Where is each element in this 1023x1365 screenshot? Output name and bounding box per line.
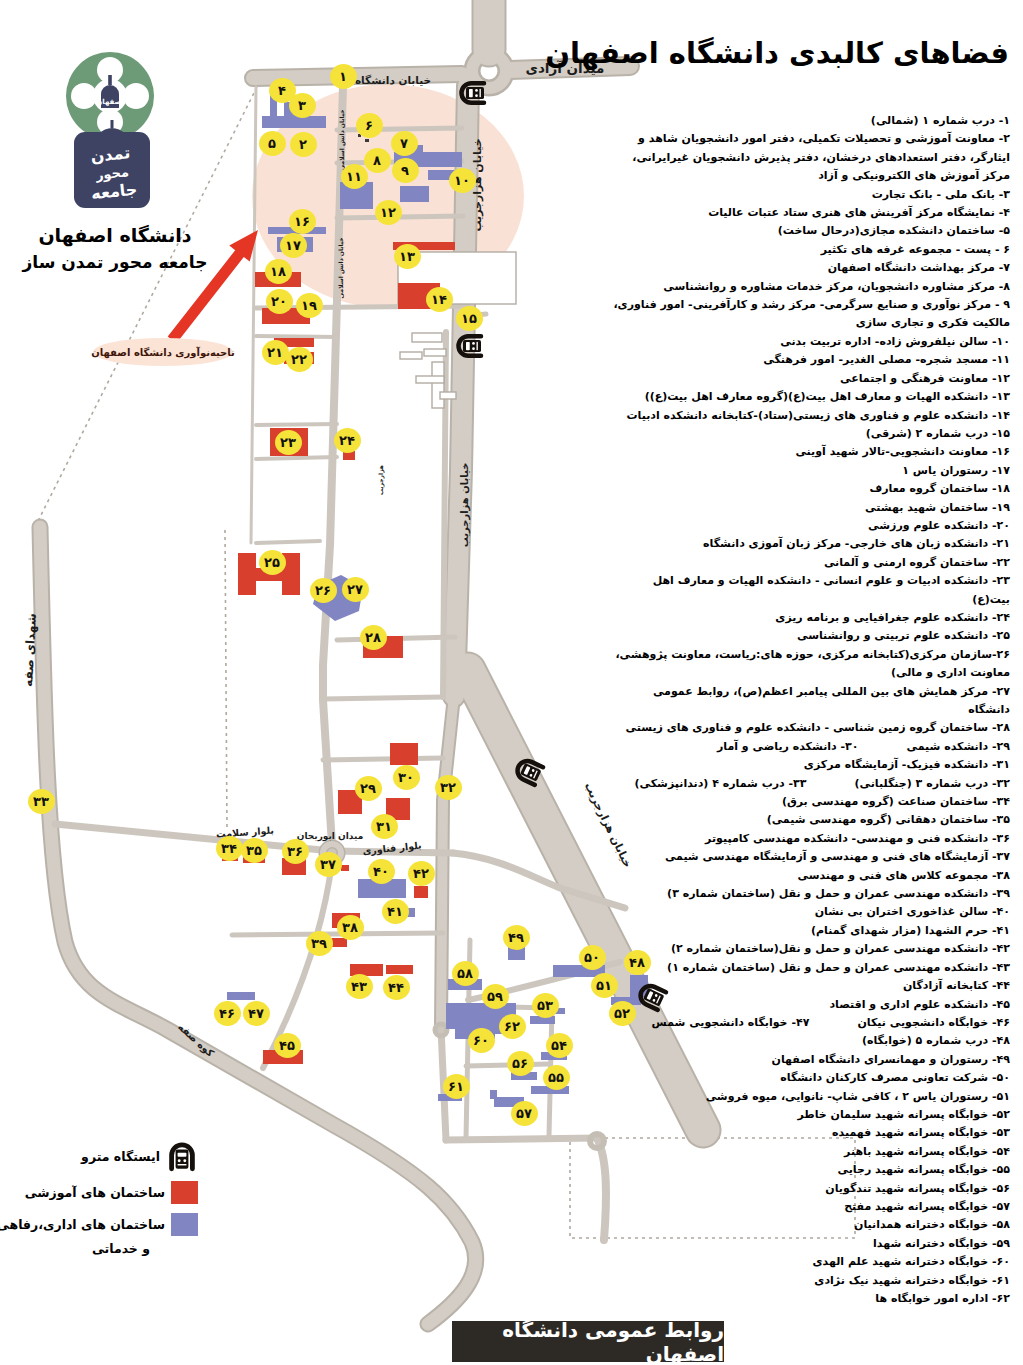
admin-building <box>313 575 363 621</box>
location-list-item: ۴۹- رستوران و مهمانسرای دانشگاه اصفهان <box>772 1051 1010 1069</box>
admin-building <box>511 1072 537 1080</box>
admin-building <box>227 992 255 1000</box>
location-list-item: ۱۸- ساختمان گروه معارف <box>869 480 1010 498</box>
educational-building <box>282 858 306 875</box>
location-list-row: ۲- معاونت آموزشی و تحصیلات تکمیلی، دفتر … <box>612 130 1010 185</box>
admin-building <box>541 1052 567 1060</box>
location-list-row: ۴۹- رستوران و مهمانسرای دانشگاه اصفهان <box>612 1051 1010 1069</box>
location-list-item: ۱۹- ساختمان شهید بهشتی <box>865 499 1010 517</box>
educational-building <box>284 352 314 364</box>
educational-building <box>386 965 413 974</box>
location-list-row: ۱۴- دانشکده علوم و فناوری های زیستی(ستاد… <box>612 407 1010 425</box>
admin-building <box>545 1008 565 1014</box>
location-list-row: ۲۶-سازمان مرکزی(کتابخانه مرکزی، حوزه های… <box>612 646 1010 683</box>
location-list-item: ۵۶- خوابگاه پسرانه شهید تندگویان <box>825 1180 1010 1198</box>
location-list-row: ۹ - مرکز نوآوری و صنایع سرگرمی- مرکز رشد… <box>612 296 1010 333</box>
location-list-row: ۵۶- خوابگاه پسرانه شهید تندگویان <box>612 1180 1010 1198</box>
location-list-row: ۵۸- خوابگاه دخترانه همدانیان <box>612 1216 1010 1234</box>
admin-building <box>270 92 277 120</box>
admin-building <box>494 1097 524 1107</box>
location-list-item: ۳۴- ساختمان صناعت (گروه مهندسی برق) <box>782 793 1010 811</box>
location-list-row: ۵۰- شرکت تعاونی مصرف کارکنان دانشگاه <box>612 1069 1010 1087</box>
outline-building <box>424 349 446 356</box>
map-legend: ایستگاه مترو ساختمان های آموزشی ساختمان … <box>0 1140 198 1265</box>
educational-building <box>341 865 349 871</box>
educational-building <box>414 886 428 898</box>
location-list-item: ۵۲- خوابگاه پسرانه شهید سلیمان خاطر <box>797 1106 1010 1124</box>
location-list-row: ۱۶- معاونت دانشجویی-تالار شهید آوینی <box>612 443 1010 461</box>
location-list-row: ۲۹- دانشکده شیمی۳۰- دانشکده ریاضی و آمار <box>612 738 1010 756</box>
location-list-row: ۶۱- خوابگاه دخترانه شهید نیک نژادی <box>612 1272 1010 1290</box>
educational-building <box>350 964 383 976</box>
innovation-arrow <box>168 230 258 343</box>
location-list-item: ۲- معاونت آموزشی و تحصیلات تکمیلی، دفتر … <box>612 130 1010 185</box>
admin-building <box>531 1086 569 1094</box>
outline-building <box>400 352 422 359</box>
footer-banner: روابط عمومی دانشگاه اصفهان <box>452 1321 724 1362</box>
location-list-row: ۱۹- ساختمان شهید بهشتی <box>612 499 1010 517</box>
location-list-item: ۲۰- دانشکده علوم ورزشی <box>868 517 1010 535</box>
outline-building <box>440 392 456 399</box>
location-list-item: ۶۲- اداره امور خوابگاه ها <box>875 1290 1010 1308</box>
educational-building <box>386 798 410 820</box>
location-list-item: ۳۵- ساختمان دهقانی (گروه مهندسی شیمی) <box>767 811 1010 829</box>
map-detail <box>365 139 369 142</box>
location-list-item: ۳۳- درب شماره ۴ (دندانپزشکی) <box>635 775 807 793</box>
legend-label: و خدماتی <box>92 1241 150 1256</box>
location-list-item: ۱۶- معاونت دانشجویی-تالار شهید آوینی <box>795 443 1010 461</box>
location-list-row: ۲۴- دانشکده علوم جغرافیایی و برنامه ریزی <box>612 609 1010 627</box>
educational-building <box>270 428 308 456</box>
location-list-item: ۲۵- دانشکده علوم تربیتی و روانشناسی <box>797 627 1010 645</box>
location-list-row: ۶ - پست - مجموعه غرفه های تکثیر <box>612 241 1010 259</box>
educational-building <box>252 568 286 581</box>
location-list-item: ۴- نمایشگاه مرکز آفرینش های هنری ستاد عت… <box>708 204 1010 222</box>
legend-label: ساختمان های اداری،رفاهی <box>0 1217 165 1232</box>
location-list-row: ۳۶- دانشکده فنی و مهندسی- دانشکده مهندسی… <box>612 830 1010 848</box>
location-list-item: ۲۸- ساختمان گروه زمین شناسی - دانشکده عل… <box>626 719 1010 737</box>
location-list-item: ۶ - پست - مجموعه غرفه های تکثیر <box>821 241 1010 259</box>
location-list-item: ۳۰- دانشکده ریاضی و آمار <box>717 738 859 756</box>
location-list-item: ۷- مرکز بهداشت دانشگاه اصفهان <box>828 259 1010 277</box>
legend-row-educational: ساختمان های آموزشی <box>0 1181 198 1204</box>
map-detail <box>359 127 363 131</box>
educational-building <box>262 308 310 324</box>
location-list-item: ۱۱- مسجد شجره- مصلی الغدیر- امور فرهنگی <box>763 351 1010 369</box>
admin-building <box>268 227 326 234</box>
location-list-row: ۶۰- خوابگاه دخترانه شهید علم الهدی <box>612 1253 1010 1271</box>
location-list-row: ۴۸- درب شماره ۵ (خوابگاه) <box>612 1032 1010 1050</box>
educational-building <box>263 1050 303 1064</box>
location-list-row: ۵۳- خوابگاه پسرانه شهید فهمیده <box>612 1124 1010 1142</box>
location-list-row: ۲۷- مرکز همایش های بین المللی پیامبر اعظ… <box>612 683 1010 720</box>
educational-building <box>243 856 265 863</box>
location-list-item: ۵۳- خوابگاه پسرانه شهید فهمیده <box>832 1124 1010 1142</box>
location-list-item: ۲۴- دانشکده علوم جغرافیایی و برنامه ریزی <box>775 609 1010 627</box>
location-list-item: ۱۵- درب شماره ۲ (شرقی) <box>866 425 1010 443</box>
educational-building <box>332 913 360 928</box>
location-list-row: ۴۳- دانشکده مهندسی عمران و حمل و نقل (سا… <box>612 959 1010 977</box>
location-list-row: ۲۵- دانشکده علوم تربیتی و روانشناسی <box>612 627 1010 645</box>
innovation-district-label: ناحیه‌نوآوری دانشگاه اصفهان <box>93 338 233 366</box>
location-list-item: ۲۲- ساختمان گروه ارمنی و آلمانی <box>824 554 1010 572</box>
location-list-row: ۴۰- سالن غذاخوری اختران بی نشان <box>612 903 1010 921</box>
location-list-item: ۳۲- درب شماره ۳ (جنگلبانی) <box>855 775 1010 793</box>
location-list-item: ۱۲- معاونت فرهنگی و اجتماعی <box>840 370 1010 388</box>
emblem-text: اصفهان <box>96 98 123 106</box>
location-list-row: ۳۷- آزمایشگاه های فنی و مهندسی و آزمایشگ… <box>612 848 1010 866</box>
legend-row-administrative-cont: و خدماتی <box>0 1241 198 1256</box>
location-list-row: ۵۱- رستوران یاس ۲ ، کافی شاپ- نانوایی، م… <box>612 1088 1010 1106</box>
location-list-item: ۶۱- خوابگاه دخترانه شهید نیک نژادی <box>814 1272 1010 1290</box>
location-list-row: ۱۲- معاونت فرهنگی و اجتماعی <box>612 370 1010 388</box>
location-list-item: ۲۶-سازمان مرکزی(کتابخانه مرکزی، حوزه های… <box>612 646 1010 683</box>
admin-building <box>488 1000 502 1034</box>
location-list-item: ۱۳- دانشکده الهیات و معارف اهل بیت(ع)(گر… <box>645 388 1010 406</box>
location-list-item: ۲۳- دانشکده ادبیات و علوم انسانی - دانشک… <box>612 572 1010 609</box>
location-list-item: ۵۹- خوابگاه دخترانه شهدا <box>873 1235 1010 1253</box>
admin-building <box>438 1094 462 1101</box>
page-title: فضاهای کالبدی دانشگاه اصفهان <box>545 36 1009 70</box>
location-list-row: ۵۷- خوابگاه پسرانه شهید مفتح <box>612 1198 1010 1216</box>
location-list-item: ۳۷- آزمایشگاه های فنی و مهندسی و آزمایشگ… <box>665 848 1010 866</box>
location-list-item: ۸- مرکز مشاوره دانشجویان، مرکز خدمات مشا… <box>663 278 1010 296</box>
location-list-item: ۳۶- دانشکده فنی و مهندسی- دانشکده مهندسی… <box>705 830 1010 848</box>
educational-color-swatch <box>171 1181 198 1204</box>
admin-building <box>358 879 406 898</box>
legend-row-metro: ایستگاه مترو <box>0 1140 198 1172</box>
admin-building <box>404 908 415 917</box>
location-list-item: ۳- بانک ملی - بانک تجارت <box>872 186 1010 204</box>
educational-building <box>222 852 238 861</box>
map-detail <box>366 132 370 136</box>
location-list-row: ۳۱- دانشکده فیزیک- آزمایشگاه مرکزی <box>612 756 1010 774</box>
legend-label: ایستگاه مترو <box>81 1149 160 1164</box>
location-list-item: ۵۴- خوابگاه پسرانه شهید باهنر <box>844 1143 1010 1161</box>
metro-icon <box>166 1140 198 1172</box>
location-list-row: ۱- درب شماره ۱ (شمالی) <box>612 112 1010 130</box>
location-list-row: ۲۲- ساختمان گروه ارمنی و آلمانی <box>612 554 1010 572</box>
university-slogan: جامعه محور تمدن ساز <box>8 252 222 272</box>
location-list-item: ۱- درب شماره ۱ (شمالی) <box>871 112 1010 130</box>
educational-building <box>398 283 440 309</box>
location-list-row: ۵۹- خوابگاه دخترانه شهدا <box>612 1235 1010 1253</box>
location-list-item: ۴۱- حرم الشهدا (مزار شهدای گمنام) <box>811 922 1010 940</box>
admin-building <box>446 1003 516 1029</box>
map-detail <box>358 134 361 137</box>
location-list-item: ۴۰- سالن غذاخوری اختران بی نشان <box>815 903 1010 921</box>
admin-building <box>490 1090 497 1099</box>
administrative-color-swatch <box>171 1213 198 1236</box>
location-list-row: ۴۴- کتابخانه آزادگان <box>612 977 1010 995</box>
admin-building <box>553 965 605 977</box>
admin-building <box>530 1016 555 1024</box>
location-list-item: ۵۰- شرکت تعاونی مصرف کارکنان دانشگاه <box>780 1069 1010 1087</box>
location-list-item: ۵- ساختمان دانشکده مجازی(درحال ساخت) <box>778 222 1010 240</box>
location-list-item: ۵۸- خوابگاه دخترانه همدانیان <box>854 1216 1010 1234</box>
location-list-item: ۴۲- دانشکده مهندسی عمران و حمل و نقل(ساخ… <box>671 940 1010 958</box>
location-list-item: ۶۰- خوابگاه دخترانه شهید علم الهدی <box>812 1253 1010 1271</box>
location-list-row: ۳- بانک ملی - بانک تجارت <box>612 186 1010 204</box>
legend-row-administrative: ساختمان های اداری،رفاهی <box>0 1213 198 1236</box>
location-list-item: ۴۷- خوابگاه دانشجویی شمس <box>652 1014 810 1032</box>
location-list-row: ۵۴- خوابگاه پسرانه شهید باهنر <box>612 1143 1010 1161</box>
location-list-row: ۳۸- مجموعه کلاس های فنی و مهندسی <box>612 867 1010 885</box>
location-list-row: ۸- مرکز مشاوره دانشجویان، مرکز خدمات مشا… <box>612 278 1010 296</box>
location-list-item: ۲۱- دانشکده زبان های خارجی- مرکز زبان آم… <box>703 535 1010 553</box>
admin-building <box>284 102 302 116</box>
campus-boundary <box>225 530 227 830</box>
admin-building <box>400 186 429 202</box>
location-list-row: ۱۳- دانشکده الهیات و معارف اهل بیت(ع)(گر… <box>612 388 1010 406</box>
outline-building <box>412 333 442 342</box>
location-list-row: ۶۲- اداره امور خوابگاه ها <box>612 1290 1010 1308</box>
location-list-item: ۹ - مرکز نوآوری و صنایع سرگرمی- مرکز رشد… <box>612 296 1010 333</box>
location-list-row: ۳۵- ساختمان دهقانی (گروه مهندسی شیمی) <box>612 811 1010 829</box>
location-list-item: ۳۹- دانشکده مهندسی عمران و حمل و نقل (سا… <box>667 885 1010 903</box>
location-list-row: ۱۷- رستوران یاس ۱ <box>612 462 1010 480</box>
admin-building <box>407 145 423 152</box>
location-list-row: ۴۶- خوابگاه دانشجویی نیکان۴۷- خوابگاه دا… <box>612 1014 1010 1032</box>
educational-building <box>329 860 338 868</box>
location-list-item: ۱۷- رستوران یاس ۱ <box>902 462 1010 480</box>
location-list-row: ۱۰- سالن نیلفروش زاده- اداره تربیت بدنی <box>612 333 1010 351</box>
campus-map-poster: خیابان دانشگاهمیدان آزادیخیابان هزارجریب… <box>0 0 1023 1365</box>
location-list-item: ۵۷- خوابگاه پسرانه شهید مفتح <box>844 1198 1010 1216</box>
location-list-item: ۵۱- رستوران یاس ۲ ، کافی شاپ- نانوایی، م… <box>706 1088 1010 1106</box>
outline-building <box>432 362 444 408</box>
slogan-plaque-icon: تمدن محور جامعه <box>70 118 154 212</box>
location-list-row: ۴۵- دانشکده علوم اداری و اقتصاد <box>612 996 1010 1014</box>
admin-building <box>455 1029 495 1039</box>
admin-building <box>277 237 313 252</box>
location-list-item: ۴۳- دانشکده مهندسی عمران و حمل و نقل (سا… <box>667 959 1010 977</box>
location-list-row: ۴- نمایشگاه مرکز آفرینش های هنری ستاد عت… <box>612 204 1010 222</box>
location-list-row: ۵۵- خوابگاه پسرانه شهید رجایی <box>612 1161 1010 1179</box>
location-list-item: ۴۸- درب شماره ۵ (خوابگاه) <box>862 1032 1010 1050</box>
location-list-item: ۳۱- دانشکده فیزیک- آزمایشگاه مرکزی <box>804 756 1010 774</box>
location-list-row: ۳۴- ساختمان صناعت (گروه مهندسی برق) <box>612 793 1010 811</box>
location-list-item: ۴۶- خوابگاه دانشجویی نیکان <box>857 1014 1010 1032</box>
educational-building <box>327 938 347 947</box>
location-list-row: ۱۸- ساختمان گروه معارف <box>612 480 1010 498</box>
legend-label: ساختمان های آموزشی <box>25 1185 165 1200</box>
location-list-row: ۴۱- حرم الشهدا (مزار شهدای گمنام) <box>612 922 1010 940</box>
educational-building <box>393 242 455 250</box>
university-name: دانشگاه اصفهان <box>20 224 210 246</box>
educational-building <box>343 450 355 460</box>
location-list-row: ۲۱- دانشکده زبان های خارجی- مرکز زبان آم… <box>612 535 1010 553</box>
admin-building <box>340 182 373 209</box>
educational-building <box>255 272 301 287</box>
admin-building <box>448 979 482 990</box>
location-list-row: ۲۰- دانشکده علوم ورزشی <box>612 517 1010 535</box>
location-list-row: ۴۲- دانشکده مهندسی عمران و حمل و نقل(ساخ… <box>612 940 1010 958</box>
location-list-row: ۷- مرکز بهداشت دانشگاه اصفهان <box>612 259 1010 277</box>
admin-building <box>394 152 462 167</box>
location-list-item: ۴۵- دانشکده علوم اداری و اقتصاد <box>829 996 1010 1014</box>
location-list-row: ۵- ساختمان دانشکده مجازی(درحال ساخت) <box>612 222 1010 240</box>
location-list-row: ۳۲- درب شماره ۳ (جنگلبانی)۳۳- درب شماره … <box>612 775 1010 793</box>
location-list-row: ۲۳- دانشکده ادبیات و علوم انسانی - دانشک… <box>612 572 1010 609</box>
location-list-item: ۳۸- مجموعه کلاس های فنی و مهندسی <box>798 867 1010 885</box>
educational-building <box>390 743 418 765</box>
location-list: ۱- درب شماره ۱ (شمالی)۲- معاونت آموزشی و… <box>612 112 1010 1308</box>
admin-building <box>428 170 462 180</box>
location-list-item: ۱۰- سالن نیلفروش زاده- اداره تربیت بدنی <box>780 333 1010 351</box>
location-list-item: ۵۵- خوابگاه پسرانه شهید رجایی <box>838 1161 1010 1179</box>
location-list-row: ۲۸- ساختمان گروه زمین شناسی - دانشکده عل… <box>612 719 1010 737</box>
educational-building <box>363 636 403 658</box>
location-list-item: ۲۷- مرکز همایش های بین المللی پیامبر اعظ… <box>612 683 1010 720</box>
educational-building <box>274 338 314 347</box>
location-list-row: ۵۲- خوابگاه پسرانه شهید سلیمان خاطر <box>612 1106 1010 1124</box>
admin-building <box>508 946 525 960</box>
location-list-item: ۲۹- دانشکده شیمی <box>907 738 1010 756</box>
location-list-row: ۱۵- درب شماره ۲ (شرقی) <box>612 425 1010 443</box>
educational-building <box>338 790 362 814</box>
outline-building <box>416 376 444 383</box>
location-list-row: ۱۱- مسجد شجره- مصلی الغدیر- امور فرهنگی <box>612 351 1010 369</box>
location-list-item: ۴۴- کتابخانه آزادگان <box>903 977 1010 995</box>
location-list-item: ۱۴- دانشکده علوم و فناوری های زیستی(ستاد… <box>626 407 1010 425</box>
location-list-row: ۳۹- دانشکده مهندسی عمران و حمل و نقل (سا… <box>612 885 1010 903</box>
